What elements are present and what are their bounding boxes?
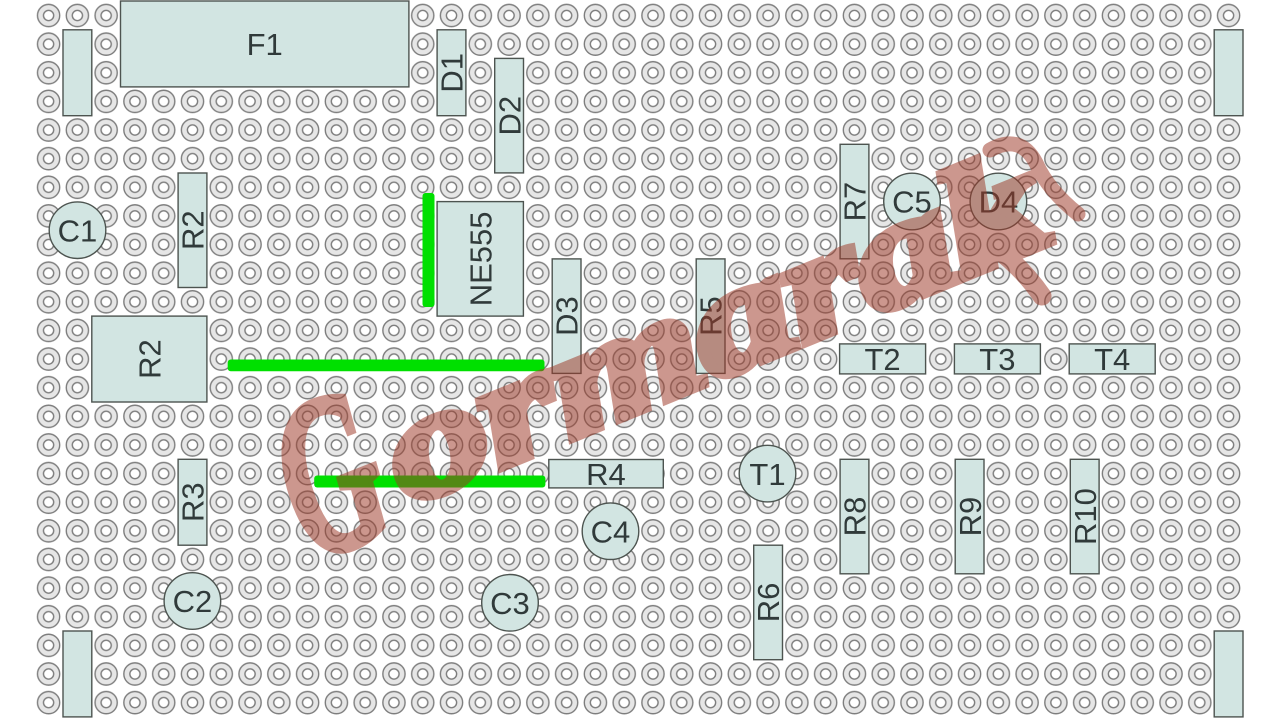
svg-text:R3: R3 [176,482,211,522]
svg-text:T3: T3 [979,342,1015,377]
svg-text:C1: C1 [58,213,98,248]
svg-text:R2: R2 [176,210,211,250]
svg-text:C3: C3 [490,586,530,621]
svg-text:C4: C4 [591,514,631,549]
svg-text:R10: R10 [1068,488,1103,545]
svg-text:NE555: NE555 [463,212,498,307]
svg-text:T1: T1 [749,457,785,492]
svg-text:D1: D1 [435,53,470,93]
svg-text:T4: T4 [1094,342,1130,377]
svg-text:R9: R9 [953,497,988,537]
svg-text:D2: D2 [492,96,527,136]
svg-text:R6: R6 [751,583,786,623]
svg-text:C2: C2 [173,584,213,619]
svg-text:R2: R2 [132,339,167,379]
svg-text:F1: F1 [247,27,283,62]
svg-text:R8: R8 [838,497,873,537]
